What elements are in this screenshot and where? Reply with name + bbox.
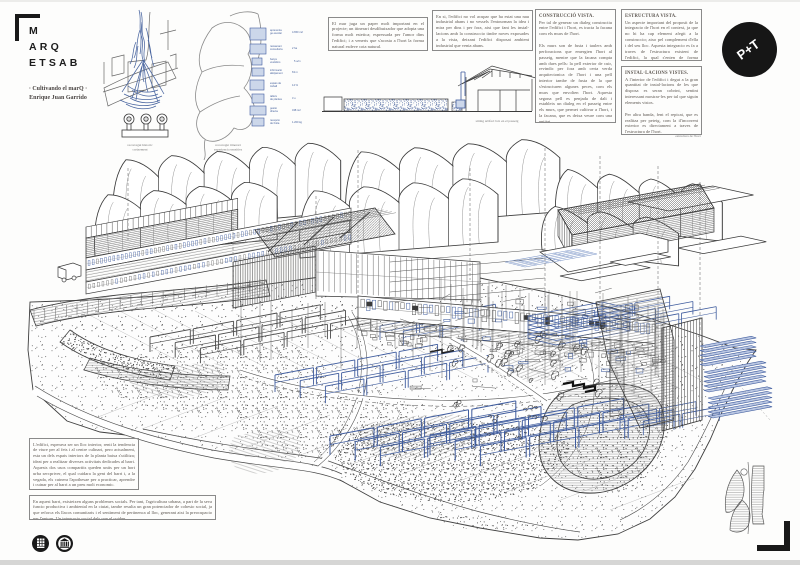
svg-text:14 %: 14 % (292, 83, 299, 87)
svg-text:sitting artifact bcn en el pas: sitting artifact bcn en el passeig (476, 119, 519, 123)
svg-text:directa: directa (270, 109, 278, 113)
svg-text:vestidors: vestidors (270, 60, 281, 64)
svg-text:de plantes: de plantes (270, 97, 283, 101)
svg-text:63 m: 63 m (292, 70, 298, 74)
svg-text:4.650 m2: 4.650 m2 (292, 30, 303, 34)
svg-text:recorregut historic: recorregut historic (128, 143, 153, 147)
svg-text:consultoria: consultoria (270, 47, 283, 51)
svg-text:ge escolar: ge escolar (270, 31, 282, 35)
svg-text:5 u/m: 5 u/m (294, 59, 301, 63)
svg-text:2 ha: 2 ha (292, 46, 298, 50)
svg-text:de fruita: de fruita (270, 121, 280, 125)
svg-text:allotjament: allotjament (270, 71, 283, 75)
svg-text:experiencia sensitiva: experiencia sensitiva (214, 148, 243, 152)
svg-text:3 u: 3 u (292, 96, 296, 100)
svg-text:1.200 kg: 1.200 kg (292, 120, 303, 124)
svg-text:treball: treball (270, 84, 277, 88)
svg-text:creixement: creixement (132, 148, 147, 152)
svg-text:438 m2: 438 m2 (292, 108, 301, 112)
svg-text:recorregut itinerari: recorregut itinerari (215, 143, 241, 147)
